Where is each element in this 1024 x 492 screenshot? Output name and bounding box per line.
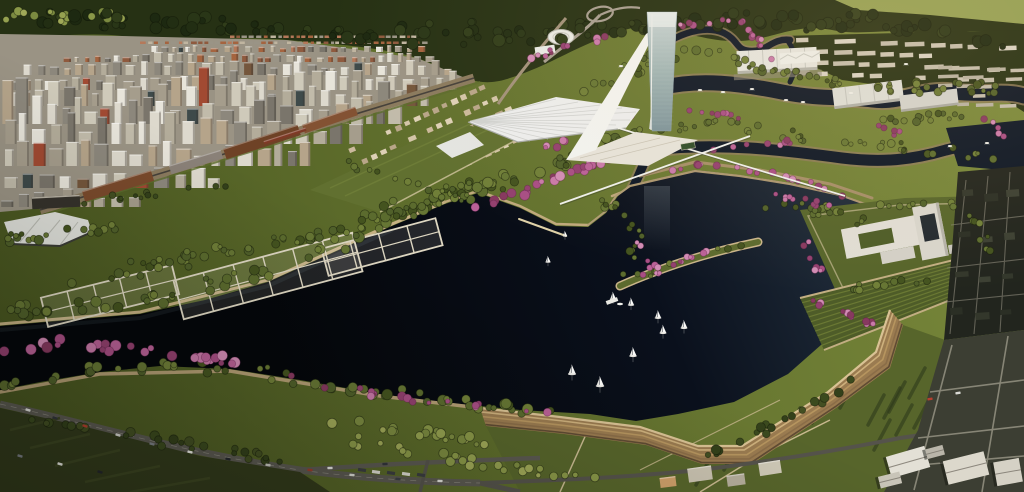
aerial-render-image	[0, 0, 1024, 492]
masterplan-rendering	[0, 0, 1024, 492]
vignette-overlay	[0, 0, 1024, 492]
